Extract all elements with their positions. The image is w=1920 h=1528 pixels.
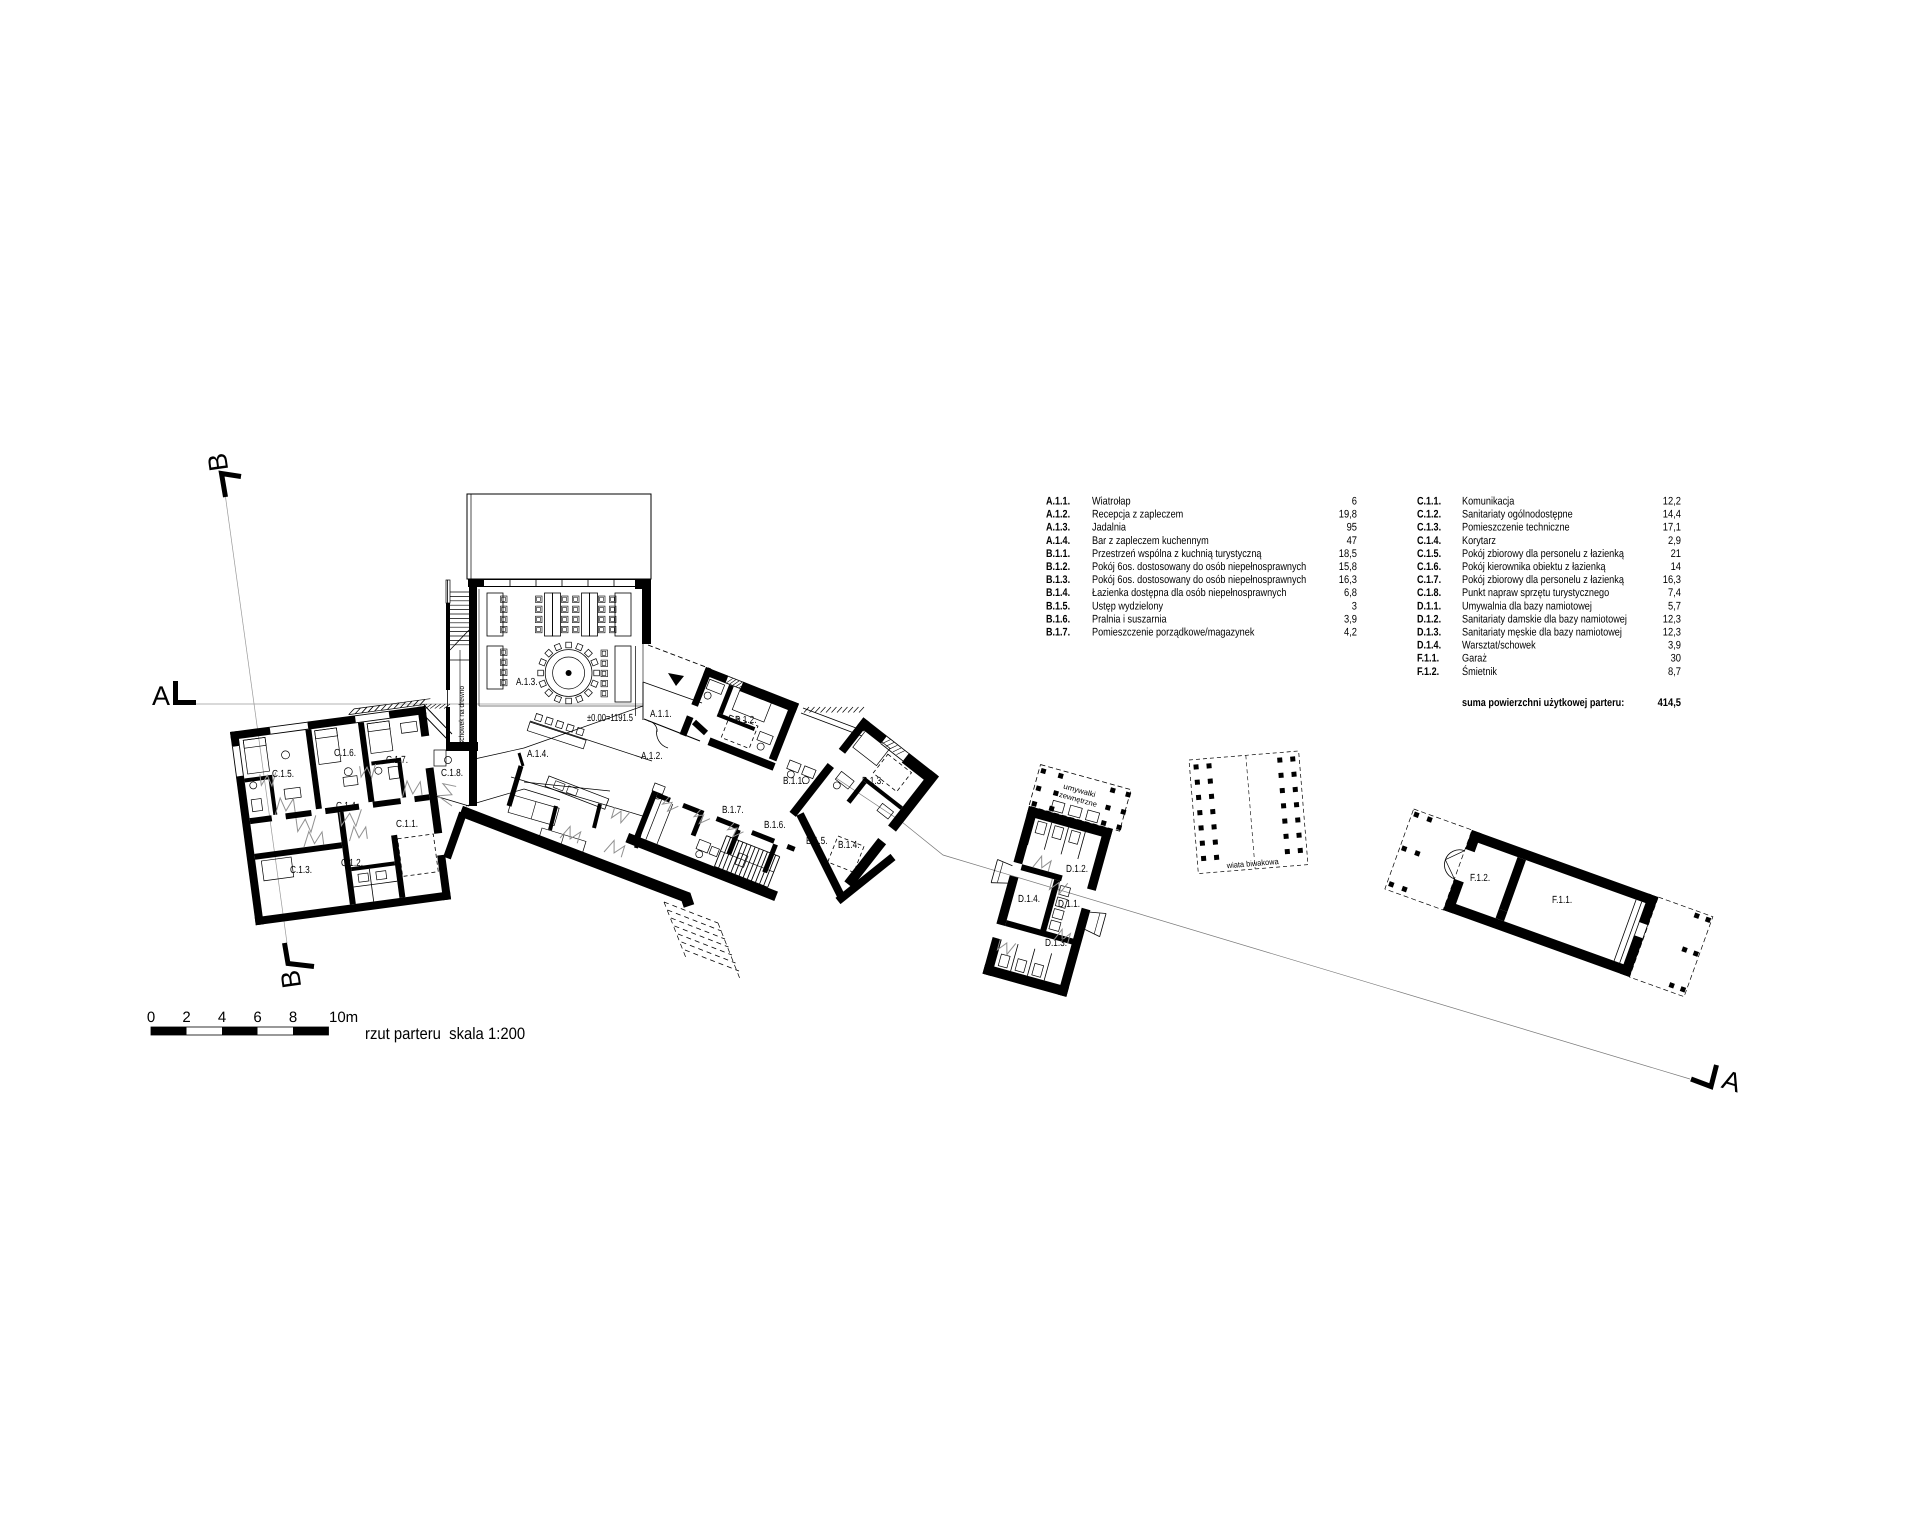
svg-text:16,3: 16,3 [1663,574,1681,586]
svg-text:B.1.3.: B.1.3. [1046,574,1070,586]
svg-text:A.1.2.: A.1.2. [641,751,663,762]
svg-text:B.1.5.: B.1.5. [1046,600,1070,612]
svg-text:D.1.2.: D.1.2. [1417,613,1441,625]
svg-text:19,8: 19,8 [1339,509,1357,521]
svg-text:A: A [152,681,170,711]
svg-text:14,4: 14,4 [1663,509,1681,521]
svg-text:B.1.5.: B.1.5. [806,836,828,847]
svg-text:C.1.6.: C.1.6. [1417,561,1441,573]
svg-text:D.1.3.: D.1.3. [1417,627,1441,639]
svg-text:4,2: 4,2 [1344,627,1357,639]
svg-text:C.1.2.: C.1.2. [341,858,363,869]
svg-text:D.1.4.: D.1.4. [1018,894,1040,905]
svg-text:14: 14 [1671,561,1681,573]
svg-text:Przestrzeń wspólna z kuchnią t: Przestrzeń wspólna z kuchnią turystyczną [1092,548,1262,560]
svg-text:B.1.4.: B.1.4. [838,840,860,851]
svg-text:16,3: 16,3 [1339,574,1357,586]
svg-text:21: 21 [1671,548,1681,560]
svg-text:B.1.1.: B.1.1. [783,776,805,787]
svg-text:B.1.6.: B.1.6. [764,820,786,831]
svg-text:C.1.8.: C.1.8. [1417,587,1441,599]
svg-text:10m: 10m [329,1009,358,1026]
svg-text:B.1.2.: B.1.2. [735,715,757,726]
svg-text:Garaż: Garaż [1462,653,1487,665]
svg-text:Jadalnia: Jadalnia [1092,522,1127,534]
svg-text:15,8: 15,8 [1339,561,1357,573]
svg-text:8,7: 8,7 [1668,666,1681,678]
svg-text:3: 3 [1352,600,1357,612]
svg-text:C.1.4.: C.1.4. [1417,535,1441,547]
svg-text:C.1.1.: C.1.1. [396,819,418,830]
svg-text:F.1.2.: F.1.2. [1417,666,1439,678]
svg-text:B.1.6.: B.1.6. [1046,613,1070,625]
svg-text:4: 4 [218,1009,226,1026]
svg-text:Ustęp wydzielony: Ustęp wydzielony [1092,600,1163,612]
svg-text:Pokój kierownika obiektu z łaz: Pokój kierownika obiektu z łazienką [1462,561,1606,573]
svg-text:C.1.5.: C.1.5. [1417,548,1441,560]
svg-text:D.1.1.: D.1.1. [1058,899,1080,910]
svg-text:12,3: 12,3 [1663,613,1681,625]
svg-text:C.1.8.: C.1.8. [441,768,463,779]
svg-text:Sanitariaty ogólnodostępne: Sanitariaty ogólnodostępne [1462,509,1573,521]
svg-text:A.1.1.: A.1.1. [1046,496,1070,508]
svg-text:Pomieszczenie techniczne: Pomieszczenie techniczne [1462,522,1570,534]
svg-text:414,5: 414,5 [1658,697,1681,709]
svg-text:C.1.4.: C.1.4. [336,801,358,812]
svg-text:Pokój 6os. dostosowany do osób: Pokój 6os. dostosowany do osób niepełnos… [1092,561,1306,573]
svg-text:C.1.7.: C.1.7. [1417,574,1441,586]
svg-text:Pralnia i suszarnia: Pralnia i suszarnia [1092,613,1167,625]
svg-text:Łazienka dostępna dla osób nie: Łazienka dostępna dla osób niepełnospraw… [1092,587,1286,599]
svg-text:Sanitariaty damskie dla bazy n: Sanitariaty damskie dla bazy namiotowej [1462,613,1627,625]
svg-text:7,4: 7,4 [1668,587,1681,599]
svg-text:Pomieszczenie porządkowe/magaz: Pomieszczenie porządkowe/magazynek [1092,627,1255,639]
svg-text:Wiatrołap: Wiatrołap [1092,496,1131,508]
svg-text:D.1.3.: D.1.3. [1045,938,1067,949]
svg-text:2,9: 2,9 [1668,535,1681,547]
svg-text:B.1.7.: B.1.7. [1046,627,1070,639]
svg-text:30: 30 [1671,653,1681,665]
svg-text:A.1.1.: A.1.1. [650,709,672,720]
svg-text:F.1.2.: F.1.2. [1470,873,1490,884]
svg-text:C.1.1.: C.1.1. [1417,496,1441,508]
svg-text:Śmietnik: Śmietnik [1462,665,1497,678]
svg-text:95: 95 [1347,522,1357,534]
svg-text:Komunikacja: Komunikacja [1462,496,1515,508]
svg-text:6,8: 6,8 [1344,587,1357,599]
svg-text:rzut parteru skala 1:200: rzut parteru skala 1:200 [365,1025,525,1043]
svg-text:B.1.4.: B.1.4. [1046,587,1070,599]
svg-text:Sanitariaty męskie dla bazy na: Sanitariaty męskie dla bazy namiotowej [1462,627,1622,639]
svg-text:6: 6 [253,1009,261,1026]
svg-text:Umywalnia dla bazy namiotowej: Umywalnia dla bazy namiotowej [1462,600,1592,612]
svg-text:C.1.2.: C.1.2. [1417,509,1441,521]
svg-text:5,7: 5,7 [1668,600,1681,612]
svg-text:Recepcja z zapleczem: Recepcja z zapleczem [1092,509,1183,521]
svg-text:2: 2 [182,1009,190,1026]
svg-text:F.1.1.: F.1.1. [1552,895,1572,906]
svg-text:47: 47 [1347,535,1357,547]
svg-text:Korytarz: Korytarz [1462,535,1496,547]
svg-text:F.1.1.: F.1.1. [1417,653,1439,665]
svg-text:C.1.3.: C.1.3. [290,865,312,876]
svg-text:A.1.4.: A.1.4. [1046,535,1070,547]
svg-text:D.1.2.: D.1.2. [1066,864,1088,875]
svg-text:schowek na drewno: schowek na drewno [457,686,466,744]
svg-text:12,3: 12,3 [1663,627,1681,639]
svg-text:3,9: 3,9 [1344,613,1357,625]
svg-text:3,9: 3,9 [1668,640,1681,652]
svg-text:A.1.4.: A.1.4. [527,749,549,760]
svg-text:18,5: 18,5 [1339,548,1357,560]
svg-text:A.1.3.: A.1.3. [516,677,538,688]
svg-text:8: 8 [289,1009,297,1026]
svg-text:C.1.6.: C.1.6. [334,748,356,759]
svg-text:6: 6 [1352,496,1357,508]
svg-text:Warsztat/schowek: Warsztat/schowek [1462,640,1536,652]
svg-text:B.1.7.: B.1.7. [722,805,744,816]
svg-text:Pokój 6os. dostosowany do osób: Pokój 6os. dostosowany do osób niepełnos… [1092,574,1306,586]
svg-text:C.1.7.: C.1.7. [386,755,408,766]
svg-text:D.1.4.: D.1.4. [1417,640,1441,652]
svg-text:C.1.5.: C.1.5. [272,769,294,780]
svg-text:D.1.1.: D.1.1. [1417,600,1441,612]
svg-text:12,2: 12,2 [1663,496,1681,508]
svg-text:suma powierzchni użytkowej par: suma powierzchni użytkowej parteru: [1462,697,1624,709]
svg-text:Bar z zapleczem kuchennym: Bar z zapleczem kuchennym [1092,535,1209,547]
svg-text:A.1.2.: A.1.2. [1046,509,1070,521]
svg-text:17,1: 17,1 [1663,522,1681,534]
svg-text:B.1.2.: B.1.2. [1046,561,1070,573]
svg-text:A.1.3.: A.1.3. [1046,522,1070,534]
svg-text:0: 0 [147,1009,155,1026]
svg-text:B.1.3.: B.1.3. [862,776,884,787]
svg-text:Pokój zbiorowy dla personelu z: Pokój zbiorowy dla personelu z łazienką [1462,548,1625,560]
svg-text:Punkt napraw sprzętu turystycz: Punkt napraw sprzętu turystycznego [1462,587,1609,599]
svg-text:±0.00=1191.5: ±0.00=1191.5 [587,713,633,724]
svg-text:B.1.1.: B.1.1. [1046,548,1070,560]
svg-text:C.1.3.: C.1.3. [1417,522,1441,534]
svg-text:Pokój zbiorowy dla personelu z: Pokój zbiorowy dla personelu z łazienką [1462,574,1625,586]
